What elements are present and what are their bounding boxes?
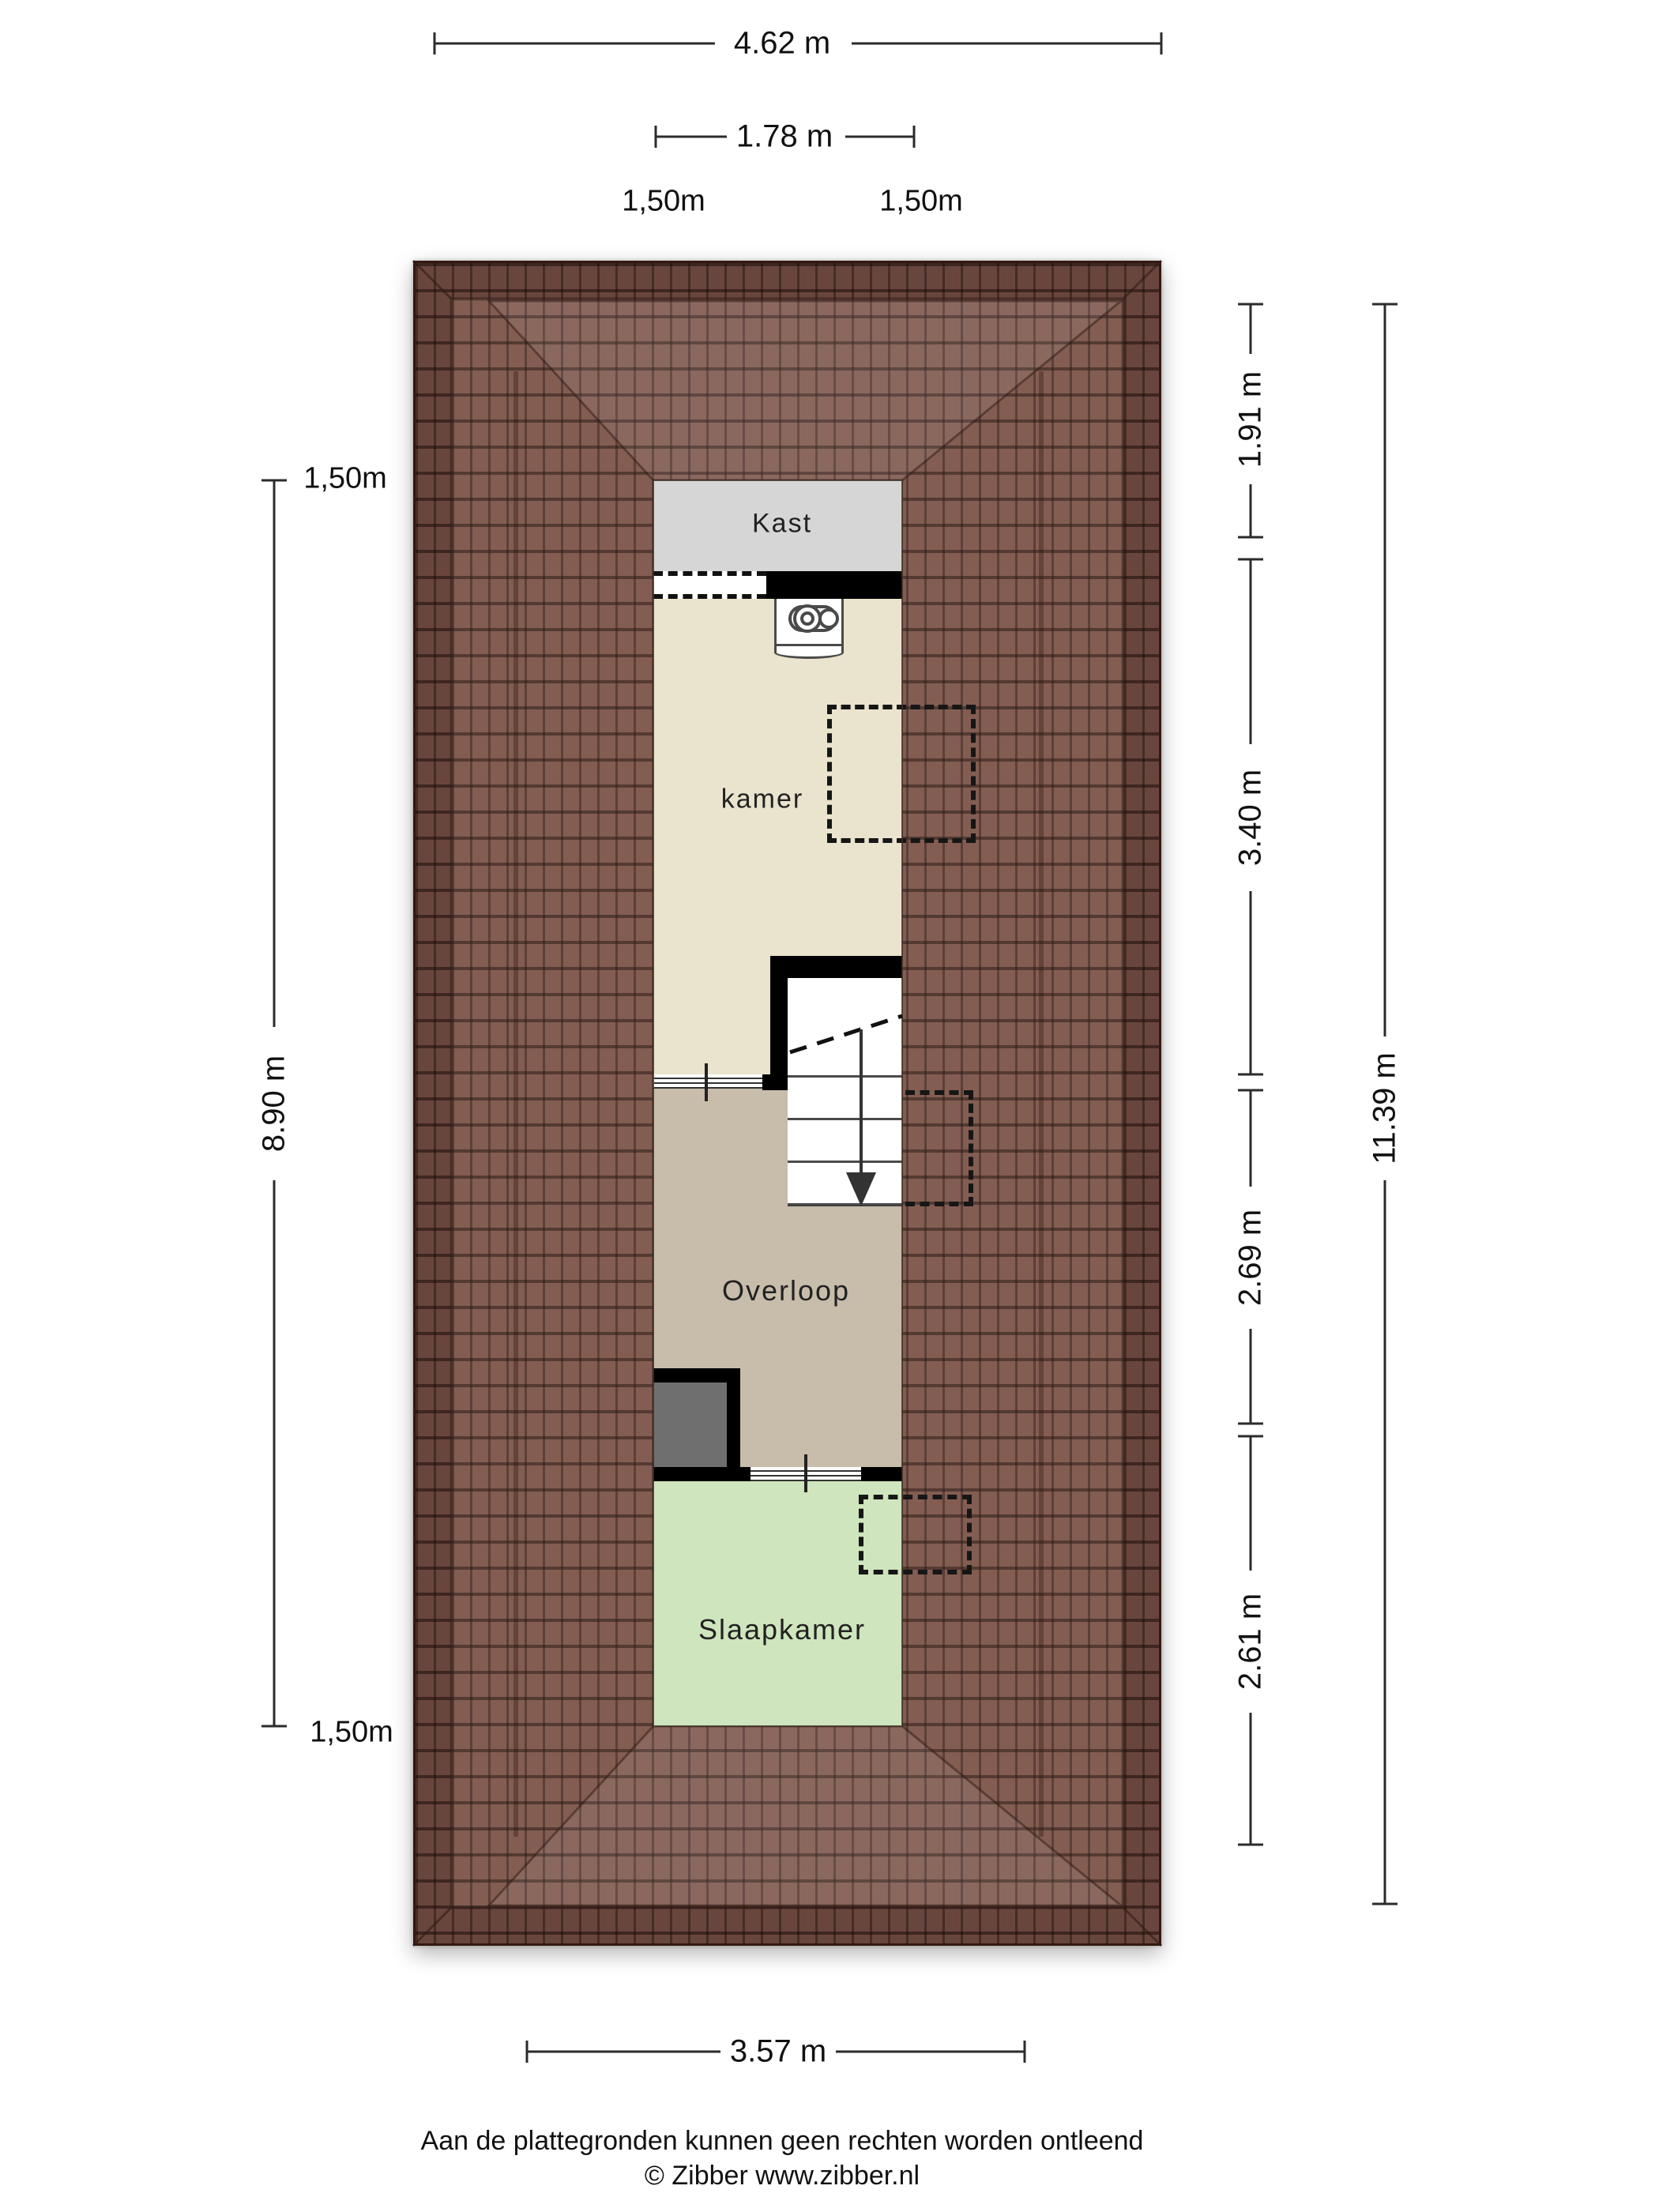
footer: Aan de plattegronden kunnen geen rechten…	[421, 2124, 1144, 2193]
dim-contour-top-right: 1,50m	[879, 185, 963, 219]
dim-right-total: 11.39 m	[1367, 1052, 1403, 1164]
dim-left-contour-top: 1,50m	[303, 462, 387, 496]
floorplan-page: Kast kamer Overloop Slaapkamer	[0, 0, 1659, 2212]
dim-right-seg-2: 3.40 m	[1233, 769, 1269, 866]
dim-right-seg-1: 1.91 m	[1233, 371, 1269, 468]
dim-bottom-width: 3.57 m	[730, 2034, 826, 2070]
dim-left-length: 8.90 m	[257, 1055, 292, 1152]
footer-credit: © Zibber www.zibber.nl	[421, 2158, 1144, 2193]
dim-left-contour-bottom: 1,50m	[310, 1716, 393, 1750]
dim-top-total: 4.62 m	[734, 26, 830, 62]
plan-marks-and-dimension-lines	[0, 0, 1659, 2212]
dim-right-seg-3: 2.69 m	[1233, 1209, 1269, 1306]
footer-disclaimer: Aan de plattegronden kunnen geen rechten…	[421, 2124, 1144, 2158]
dim-top-inner: 1.78 m	[736, 119, 833, 155]
dim-contour-top-left: 1,50m	[622, 185, 705, 219]
dim-right-seg-4: 2.61 m	[1233, 1593, 1269, 1690]
